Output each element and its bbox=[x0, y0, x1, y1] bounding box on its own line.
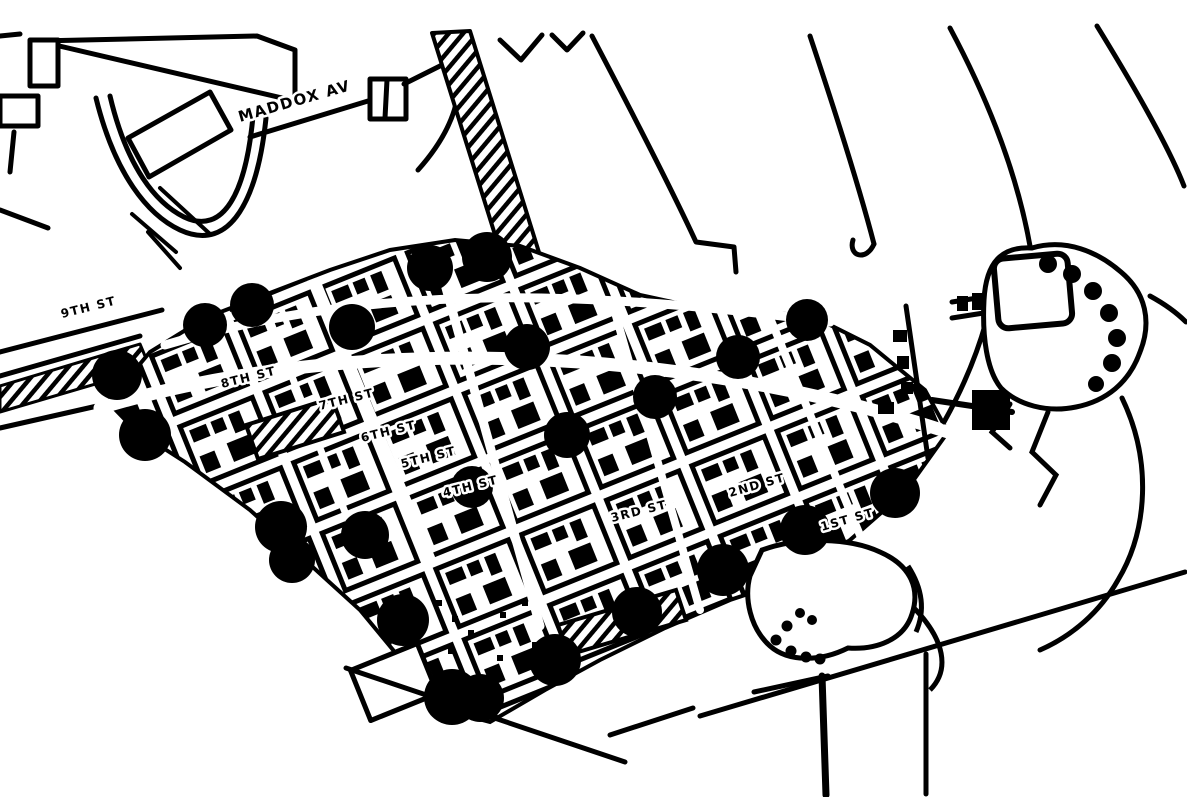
map-marker-dot bbox=[786, 299, 828, 341]
map-marker-dot bbox=[329, 304, 375, 350]
map-marker-dot bbox=[377, 594, 429, 646]
map-marker-dot bbox=[462, 232, 512, 282]
map-marker-dot bbox=[716, 335, 760, 379]
map-marker-dot bbox=[407, 245, 453, 291]
map-marker-dot bbox=[544, 412, 590, 458]
map-marker-dot bbox=[456, 674, 504, 722]
map-marker-dot bbox=[870, 468, 920, 518]
map-marker-dot bbox=[529, 634, 581, 686]
map-marker-dot bbox=[697, 544, 749, 596]
map-marker-dot bbox=[183, 303, 227, 347]
map-marker-dot bbox=[633, 375, 677, 419]
map-marker-dot bbox=[269, 537, 315, 583]
map-marker-dot bbox=[92, 350, 142, 400]
scanned-map-page: MADDOX AV 9TH ST 8TH ST 7TH ST 6TH ST 5T… bbox=[0, 0, 1187, 797]
map-marker-dot bbox=[341, 511, 389, 559]
peninsula-building bbox=[993, 253, 1073, 329]
map-marker-dot bbox=[612, 587, 662, 637]
map-marker-dot bbox=[230, 283, 274, 327]
map-canvas: MADDOX AV 9TH ST 8TH ST 7TH ST 6TH ST 5T… bbox=[0, 0, 1187, 797]
map-marker-dot bbox=[504, 324, 550, 370]
map-marker-dot bbox=[119, 409, 171, 461]
